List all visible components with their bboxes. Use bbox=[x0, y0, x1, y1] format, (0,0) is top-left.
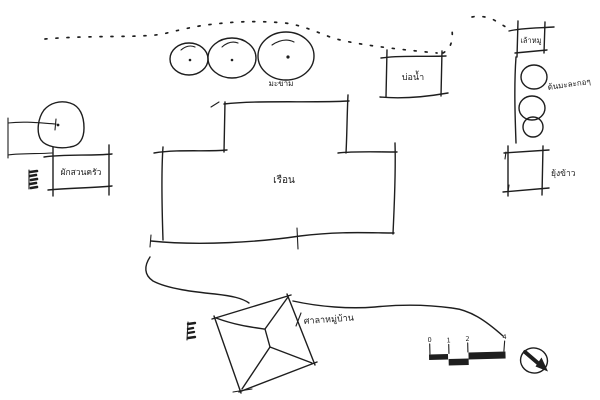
tree-circle bbox=[258, 32, 314, 80]
dimension-line bbox=[8, 122, 56, 124]
tamarind-label: มะขาม bbox=[269, 79, 294, 88]
footpath-left bbox=[146, 257, 249, 303]
gate-hatch-bottom bbox=[187, 322, 195, 340]
gate-hatch-left bbox=[29, 170, 37, 189]
well-label: บ่อน้ำ bbox=[402, 70, 424, 83]
pig-pen-box: เล้าหมู bbox=[509, 21, 554, 57]
house-top-edge bbox=[224, 101, 349, 104]
house-wall bbox=[224, 102, 225, 152]
branch-mark bbox=[181, 46, 195, 50]
fence-line bbox=[515, 57, 516, 143]
scale-number: 4 bbox=[502, 333, 506, 341]
tick-mark bbox=[297, 228, 298, 249]
scale-segment bbox=[449, 358, 469, 365]
branch-mark bbox=[222, 42, 238, 47]
rice-barn-label: ยุ้งข้าว bbox=[551, 168, 576, 179]
tree-center-dot bbox=[286, 55, 289, 58]
kitchen-garden-label: ผักสวนครัว bbox=[61, 168, 102, 178]
site-plan-sketch: มะขาม ผักสวนครัว เรือน bbox=[0, 0, 600, 400]
well-box: บ่อน้ำ bbox=[380, 50, 448, 98]
tree-center-dot bbox=[189, 59, 192, 62]
house-label: เรือน bbox=[273, 174, 295, 186]
pavilion-hip bbox=[270, 347, 312, 363]
scale-segment bbox=[429, 354, 448, 360]
scale-number: 1 bbox=[446, 336, 450, 344]
pavilion-edge bbox=[214, 316, 241, 393]
scale-number: 2 bbox=[465, 335, 469, 343]
north-needle-head bbox=[536, 358, 549, 372]
pavilion-edge bbox=[212, 295, 291, 319]
scale-tick bbox=[504, 341, 505, 351]
tree-circle bbox=[170, 43, 208, 75]
tree-circle bbox=[521, 65, 547, 89]
house-wall bbox=[338, 152, 397, 153]
village-pavilion: ศาลาหมู่บ้าน bbox=[212, 294, 354, 393]
north-needle bbox=[525, 352, 539, 364]
site-plan-sketch-page: มะขาม ผักสวนครัว เรือน bbox=[0, 0, 600, 400]
tick-mark bbox=[211, 102, 219, 107]
tree-center-dot bbox=[57, 124, 60, 127]
papaya-label: ต้นมะละกอๆ bbox=[547, 77, 591, 92]
house-outline: เรือน bbox=[150, 95, 397, 249]
branch-mark bbox=[272, 40, 294, 45]
house-wall bbox=[154, 150, 227, 153]
pavilion-ridge bbox=[265, 329, 270, 347]
tree-circle bbox=[208, 38, 256, 78]
house-wall bbox=[346, 95, 348, 153]
scale-segment bbox=[468, 351, 505, 359]
pavilion-hip bbox=[216, 318, 264, 329]
dimension-tick bbox=[55, 119, 56, 130]
papaya-tree-row: ต้นมะละกอๆ bbox=[505, 57, 591, 192]
pavilion-hip bbox=[242, 347, 270, 389]
house-wall bbox=[162, 147, 163, 240]
north-arrow bbox=[518, 345, 550, 375]
scale-number: 0 bbox=[427, 336, 431, 344]
dimension-line bbox=[8, 153, 52, 155]
tree-center-dot bbox=[231, 59, 234, 62]
rice-barn-box: ยุ้งข้าว bbox=[503, 146, 576, 196]
house-wall bbox=[393, 143, 395, 234]
boundary-dotted-line bbox=[45, 16, 511, 53]
kitchen-garden-plot: ผักสวนครัว bbox=[44, 145, 112, 196]
house-bottom-edge bbox=[151, 233, 394, 244]
pavilion-label: ศาลาหมู่บ้าน bbox=[303, 313, 354, 327]
tick-mark bbox=[150, 235, 151, 247]
tree-row: มะขาม bbox=[170, 32, 314, 88]
pig-pen-label: เล้าหมู bbox=[520, 36, 541, 45]
scale-bar: 0 1 2 4 bbox=[427, 333, 507, 366]
left-tree bbox=[8, 102, 84, 158]
